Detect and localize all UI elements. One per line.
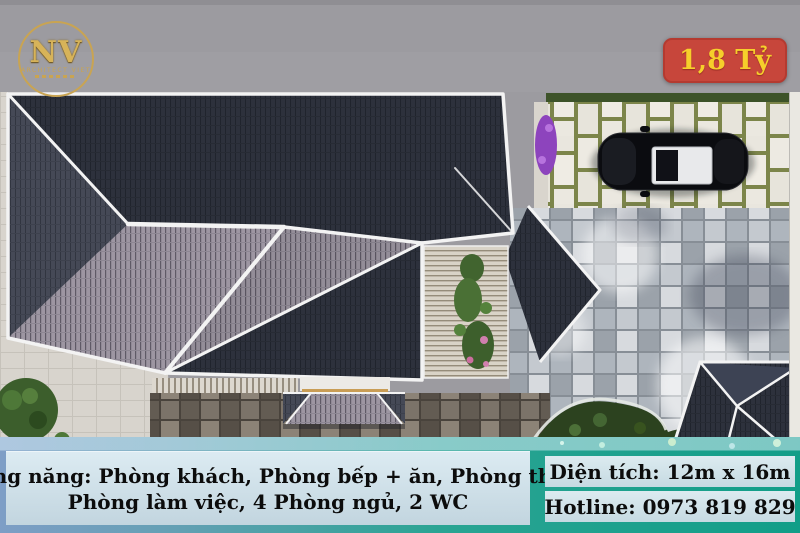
hedge (546, 93, 792, 102)
features-bar: Công năng: Phòng khách, Phòng bếp + ăn, … (6, 451, 530, 525)
logo-tagline-dashes (35, 75, 77, 78)
logo-monogram: NV (30, 40, 83, 66)
logo-subtitle: ARCHITECT VIET (21, 67, 91, 74)
price-badge-label: 1,8 Tỷ (679, 45, 771, 76)
boundary-wall (790, 92, 800, 452)
company-logo: NV ARCHITECT VIET (18, 21, 94, 97)
car (591, 126, 755, 197)
features-line-1: Công năng: Phòng khách, Phòng bếp + ăn, … (0, 463, 573, 489)
area-label: Diện tích: 12m x 16m (550, 460, 791, 484)
car-mirror-left (640, 126, 650, 132)
price-badge: 1,8 Tỷ (663, 38, 787, 83)
hotline-bar: Hotline: 0973 819 829 (545, 491, 795, 522)
features-line-2: Phòng làm việc, 4 Phòng ngủ, 2 WC (68, 489, 469, 515)
pink-flowers (480, 336, 488, 344)
bokeh-dots (560, 441, 564, 445)
courtyard-pergola (424, 246, 508, 378)
area-bar: Diện tích: 12m x 16m (545, 456, 795, 487)
car-mirror-right (640, 191, 650, 197)
hotline-label: Hotline: 0973 819 829 (544, 495, 795, 519)
porch-canopy (300, 377, 390, 391)
